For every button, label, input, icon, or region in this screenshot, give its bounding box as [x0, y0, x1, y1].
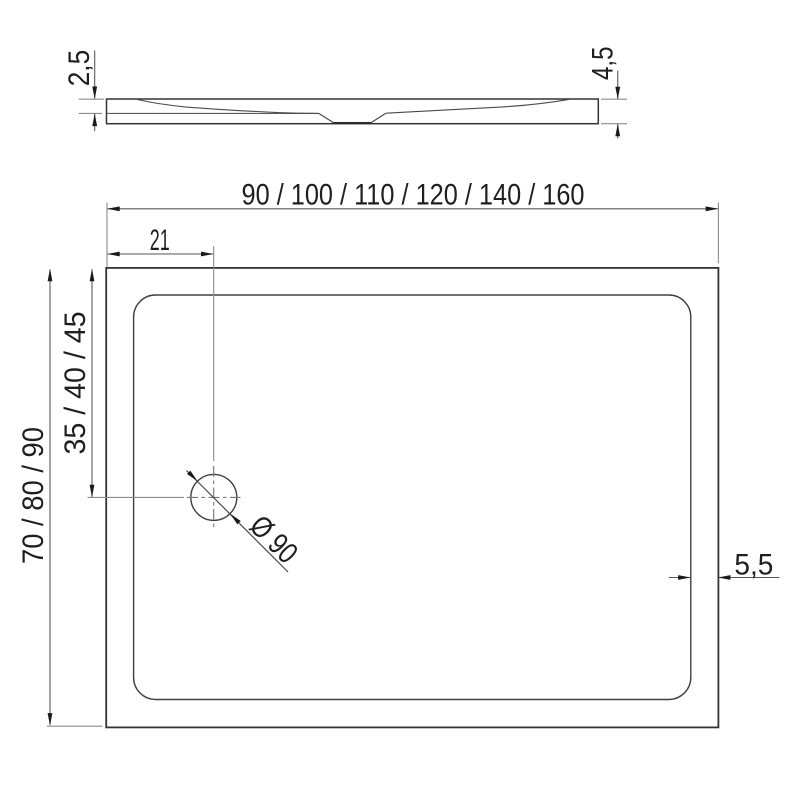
svg-text:70 / 80 / 90: 70 / 80 / 90: [17, 427, 50, 564]
svg-text:5,5: 5,5: [734, 549, 773, 582]
svg-text:Ø 90: Ø 90: [243, 509, 304, 570]
svg-text:4,5: 4,5: [586, 47, 619, 81]
svg-text:35 / 40 / 45: 35 / 40 / 45: [59, 312, 92, 455]
svg-text:21: 21: [150, 224, 170, 257]
svg-text:90 / 100 / 110 / 120 / 140 / 1: 90 / 100 / 110 / 120 / 140 / 160: [242, 179, 585, 212]
svg-text:2,5: 2,5: [63, 50, 96, 87]
